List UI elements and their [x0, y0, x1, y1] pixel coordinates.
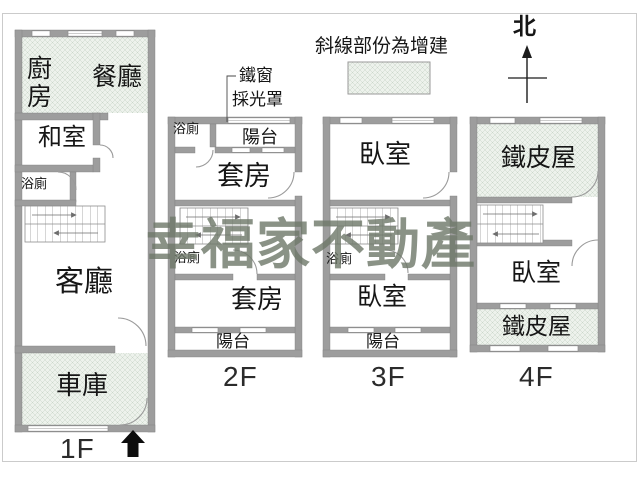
room-label-dining: 餐廳 [92, 64, 142, 92]
room-label-kitchen: 廚房 [27, 56, 55, 112]
room-label-balcony-3f: 陽台 [366, 332, 400, 351]
room-label-bedroom-3f-bottom: 臥室 [357, 284, 407, 312]
callout-line2: 採光罩 [232, 90, 283, 109]
room-label-balcony-2f-top: 陽台 [242, 127, 278, 147]
entrance-arrow-icon [121, 430, 145, 457]
room-label-tatami: 和室 [38, 125, 86, 152]
room-label-balcony-2f-bottom: 陽台 [216, 332, 250, 351]
room-label-shed-4f-bottom: 鐵皮屋 [502, 314, 571, 340]
room-label-bath-2f-top: 浴廁 [173, 122, 199, 137]
room-label-suite-2f-bottom: 套房 [231, 285, 283, 314]
room-label-garage: 車庫 [56, 371, 108, 400]
room-label-shed-4f-top: 鐵皮屋 [501, 145, 576, 173]
compass-label: 北 [513, 14, 536, 40]
legend-note: 斜線部份為增建 [315, 36, 448, 57]
floor-label-3f: 3F [371, 361, 406, 392]
floor-label-2f: 2F [223, 361, 258, 392]
floor-label-4f: 4F [519, 361, 554, 392]
room-label-living: 客廳 [55, 266, 113, 298]
floor-plan-canvas: 廚房 餐廳 和室 浴廁 客廳 車庫 1F 浴廁 陽台 套房 浴廁 套房 陽台 2… [0, 0, 640, 480]
legend-swatch [348, 62, 430, 94]
north-arrow-icon [508, 45, 547, 103]
room-label-suite-2f-top: 套房 [217, 161, 271, 191]
watermark: 幸福家不動產 [146, 200, 476, 279]
room-label-bath-1f: 浴廁 [21, 177, 47, 192]
floor-label-1f: 1F [60, 433, 95, 464]
room-label-bedroom-4f: 臥室 [511, 260, 561, 288]
room-label-bedroom-3f-top: 臥室 [359, 140, 411, 169]
callout-line1: 鐵窗 [239, 66, 273, 85]
